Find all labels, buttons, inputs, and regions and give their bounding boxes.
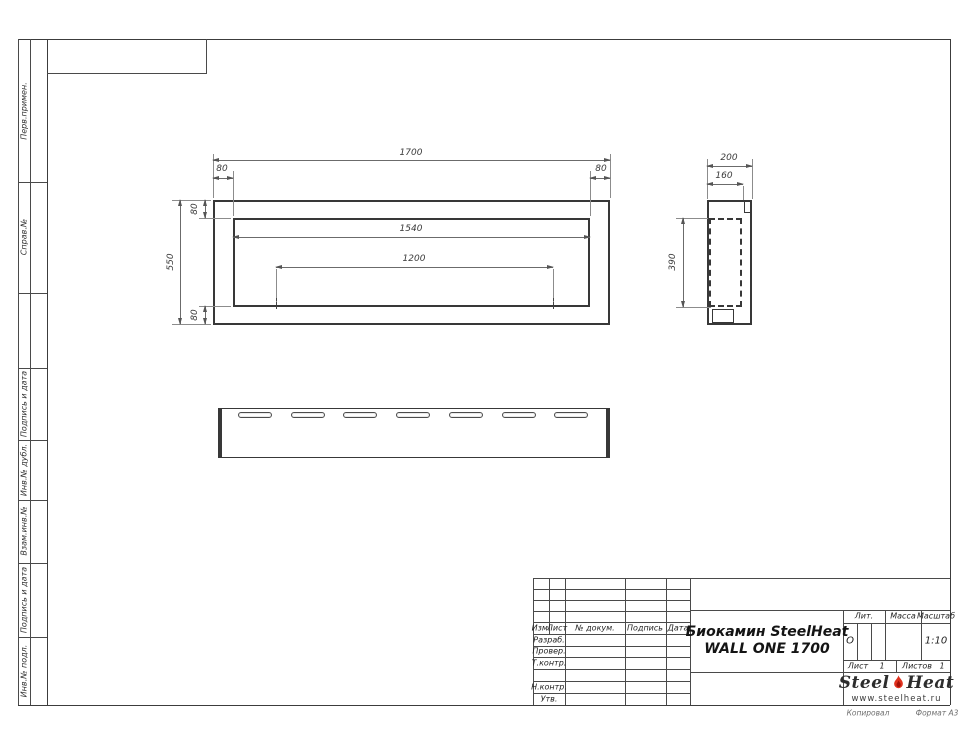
document-title-line2: WALL ONE 1700	[686, 641, 849, 658]
tb-row-prover: Провер.	[532, 647, 565, 656]
dim-line-390	[683, 218, 684, 307]
tb-row-razrab: Разраб.	[533, 636, 564, 645]
logo-url: www.steelheat.ru	[851, 694, 941, 704]
sidebar-cell-divider	[18, 293, 47, 294]
tb-scale-label: Масштаб	[917, 612, 955, 621]
tb-line	[666, 578, 667, 705]
sidebar-divider-line	[30, 39, 31, 705]
dim-line-550	[180, 200, 181, 324]
dim-label-1200: 1200	[401, 254, 428, 264]
tb-row-utv: Утв.	[541, 695, 558, 704]
sidebar-cell-divider	[18, 563, 47, 564]
sidebar-label-sprav-no: Справ.№	[20, 219, 29, 255]
dim-label-160: 160	[713, 171, 734, 181]
sidebar-cell-divider	[18, 440, 47, 441]
tb-sheet-value: 1	[879, 662, 884, 671]
vent-slot	[449, 412, 483, 418]
sidebar-label-perv-primen: Перв.примен.	[20, 82, 29, 140]
sidebar-cell-divider	[18, 182, 47, 183]
dim-label-1540: 1540	[398, 224, 425, 234]
logo-cell: Steel Heat www.steelheat.ru	[843, 672, 950, 705]
tb-row-nkontr: Н.контр.	[531, 683, 567, 692]
tb-lit-label: Лит.	[855, 612, 873, 621]
dim-line-80-left	[213, 178, 233, 179]
dim-label-550: 550	[166, 251, 176, 272]
drawing-sheet: Перв.примен. Справ.№ Подпись и дата Инв.…	[0, 0, 970, 749]
vent-slot	[396, 412, 430, 418]
dim-label-390: 390	[668, 251, 678, 272]
burner-center-mark	[553, 298, 555, 309]
corner-stamp-right-line	[206, 39, 207, 73]
frame-top-line	[18, 39, 950, 40]
vent-slot	[291, 412, 325, 418]
sidebar-cell-divider	[18, 500, 47, 501]
document-title-line1: Биокамин SteelHeat	[686, 624, 849, 641]
logo: Steel Heat	[843, 673, 950, 693]
tb-line	[885, 610, 886, 660]
sidebar-label-podpis-data-2: Подпись и дата	[20, 567, 29, 633]
side-bracket	[744, 201, 752, 213]
dim-label-80-left: 80	[214, 164, 229, 174]
tb-header-podpis: Подпись	[627, 624, 663, 633]
dim-label-1700: 1700	[398, 148, 425, 158]
logo-steel-text: Steel	[839, 673, 890, 693]
tb-line	[625, 578, 626, 705]
document-title: Биокамин SteelHeat WALL ONE 1700	[686, 624, 849, 658]
dim-label-200: 200	[718, 153, 739, 163]
sidebar-cell-divider	[18, 368, 47, 369]
frame-bottom-line	[18, 705, 950, 706]
tb-scale-value: 1:10	[925, 636, 947, 647]
burner-center-mark	[276, 298, 278, 309]
footer-copied-label: Копировал	[847, 709, 890, 718]
tb-line	[843, 623, 950, 624]
vent-slot	[238, 412, 272, 418]
frame-left-inner-line	[47, 39, 48, 705]
sidebar-cell-divider	[18, 637, 47, 638]
ext-line	[743, 186, 744, 200]
dim-label-80-top: 80	[190, 201, 200, 216]
sidebar-label-podpis-data-1: Подпись и дата	[20, 371, 29, 437]
corner-stamp-bottom-line	[47, 73, 207, 74]
sidebar-label-vzam-inv: Взам.инв.№	[20, 506, 29, 555]
bottom-view-slots	[222, 409, 606, 457]
tb-row-tkontr: Т.контр.	[532, 659, 567, 668]
dim-label-80-bottom: 80	[190, 307, 200, 322]
dim-line-80-top	[205, 200, 206, 218]
flame-icon	[891, 674, 906, 693]
tb-sheet-label: Лист	[848, 662, 868, 671]
tb-header-dokum: № докум.	[575, 624, 614, 633]
dim-line-1200	[276, 267, 553, 268]
tb-lit-value: О	[846, 636, 854, 647]
tb-sheets-label: Листов	[902, 662, 932, 671]
dim-line-80-right	[590, 178, 610, 179]
bottom-view	[218, 408, 610, 458]
tb-sheets-value: 1	[939, 662, 944, 671]
frame-right-line	[950, 39, 951, 705]
dim-line-1540	[233, 237, 590, 238]
tb-line	[857, 623, 858, 660]
dim-line-160	[707, 184, 743, 185]
tb-line	[871, 623, 872, 660]
dim-line-80-bottom	[205, 306, 206, 324]
vent-slot	[554, 412, 588, 418]
sidebar-label-inv-podl: Инв.№ подл.	[20, 645, 29, 698]
footer-format-label: Формат А3	[916, 709, 959, 718]
sidebar-label-inv-dubl: Инв.№ дубл.	[20, 444, 29, 496]
side-hidden-contour	[709, 218, 742, 307]
dim-line-1700	[213, 160, 610, 161]
tb-line	[896, 660, 897, 672]
vent-slot	[343, 412, 377, 418]
tb-line	[533, 578, 950, 579]
tb-mass-label: Масса	[890, 612, 916, 621]
side-burner-block	[712, 309, 734, 323]
dim-label-80-right: 80	[593, 164, 608, 174]
tb-header-list: Лист	[547, 624, 567, 633]
vent-slot	[502, 412, 536, 418]
dim-line-200	[707, 166, 752, 167]
logo-heat-text: Heat	[907, 673, 955, 693]
